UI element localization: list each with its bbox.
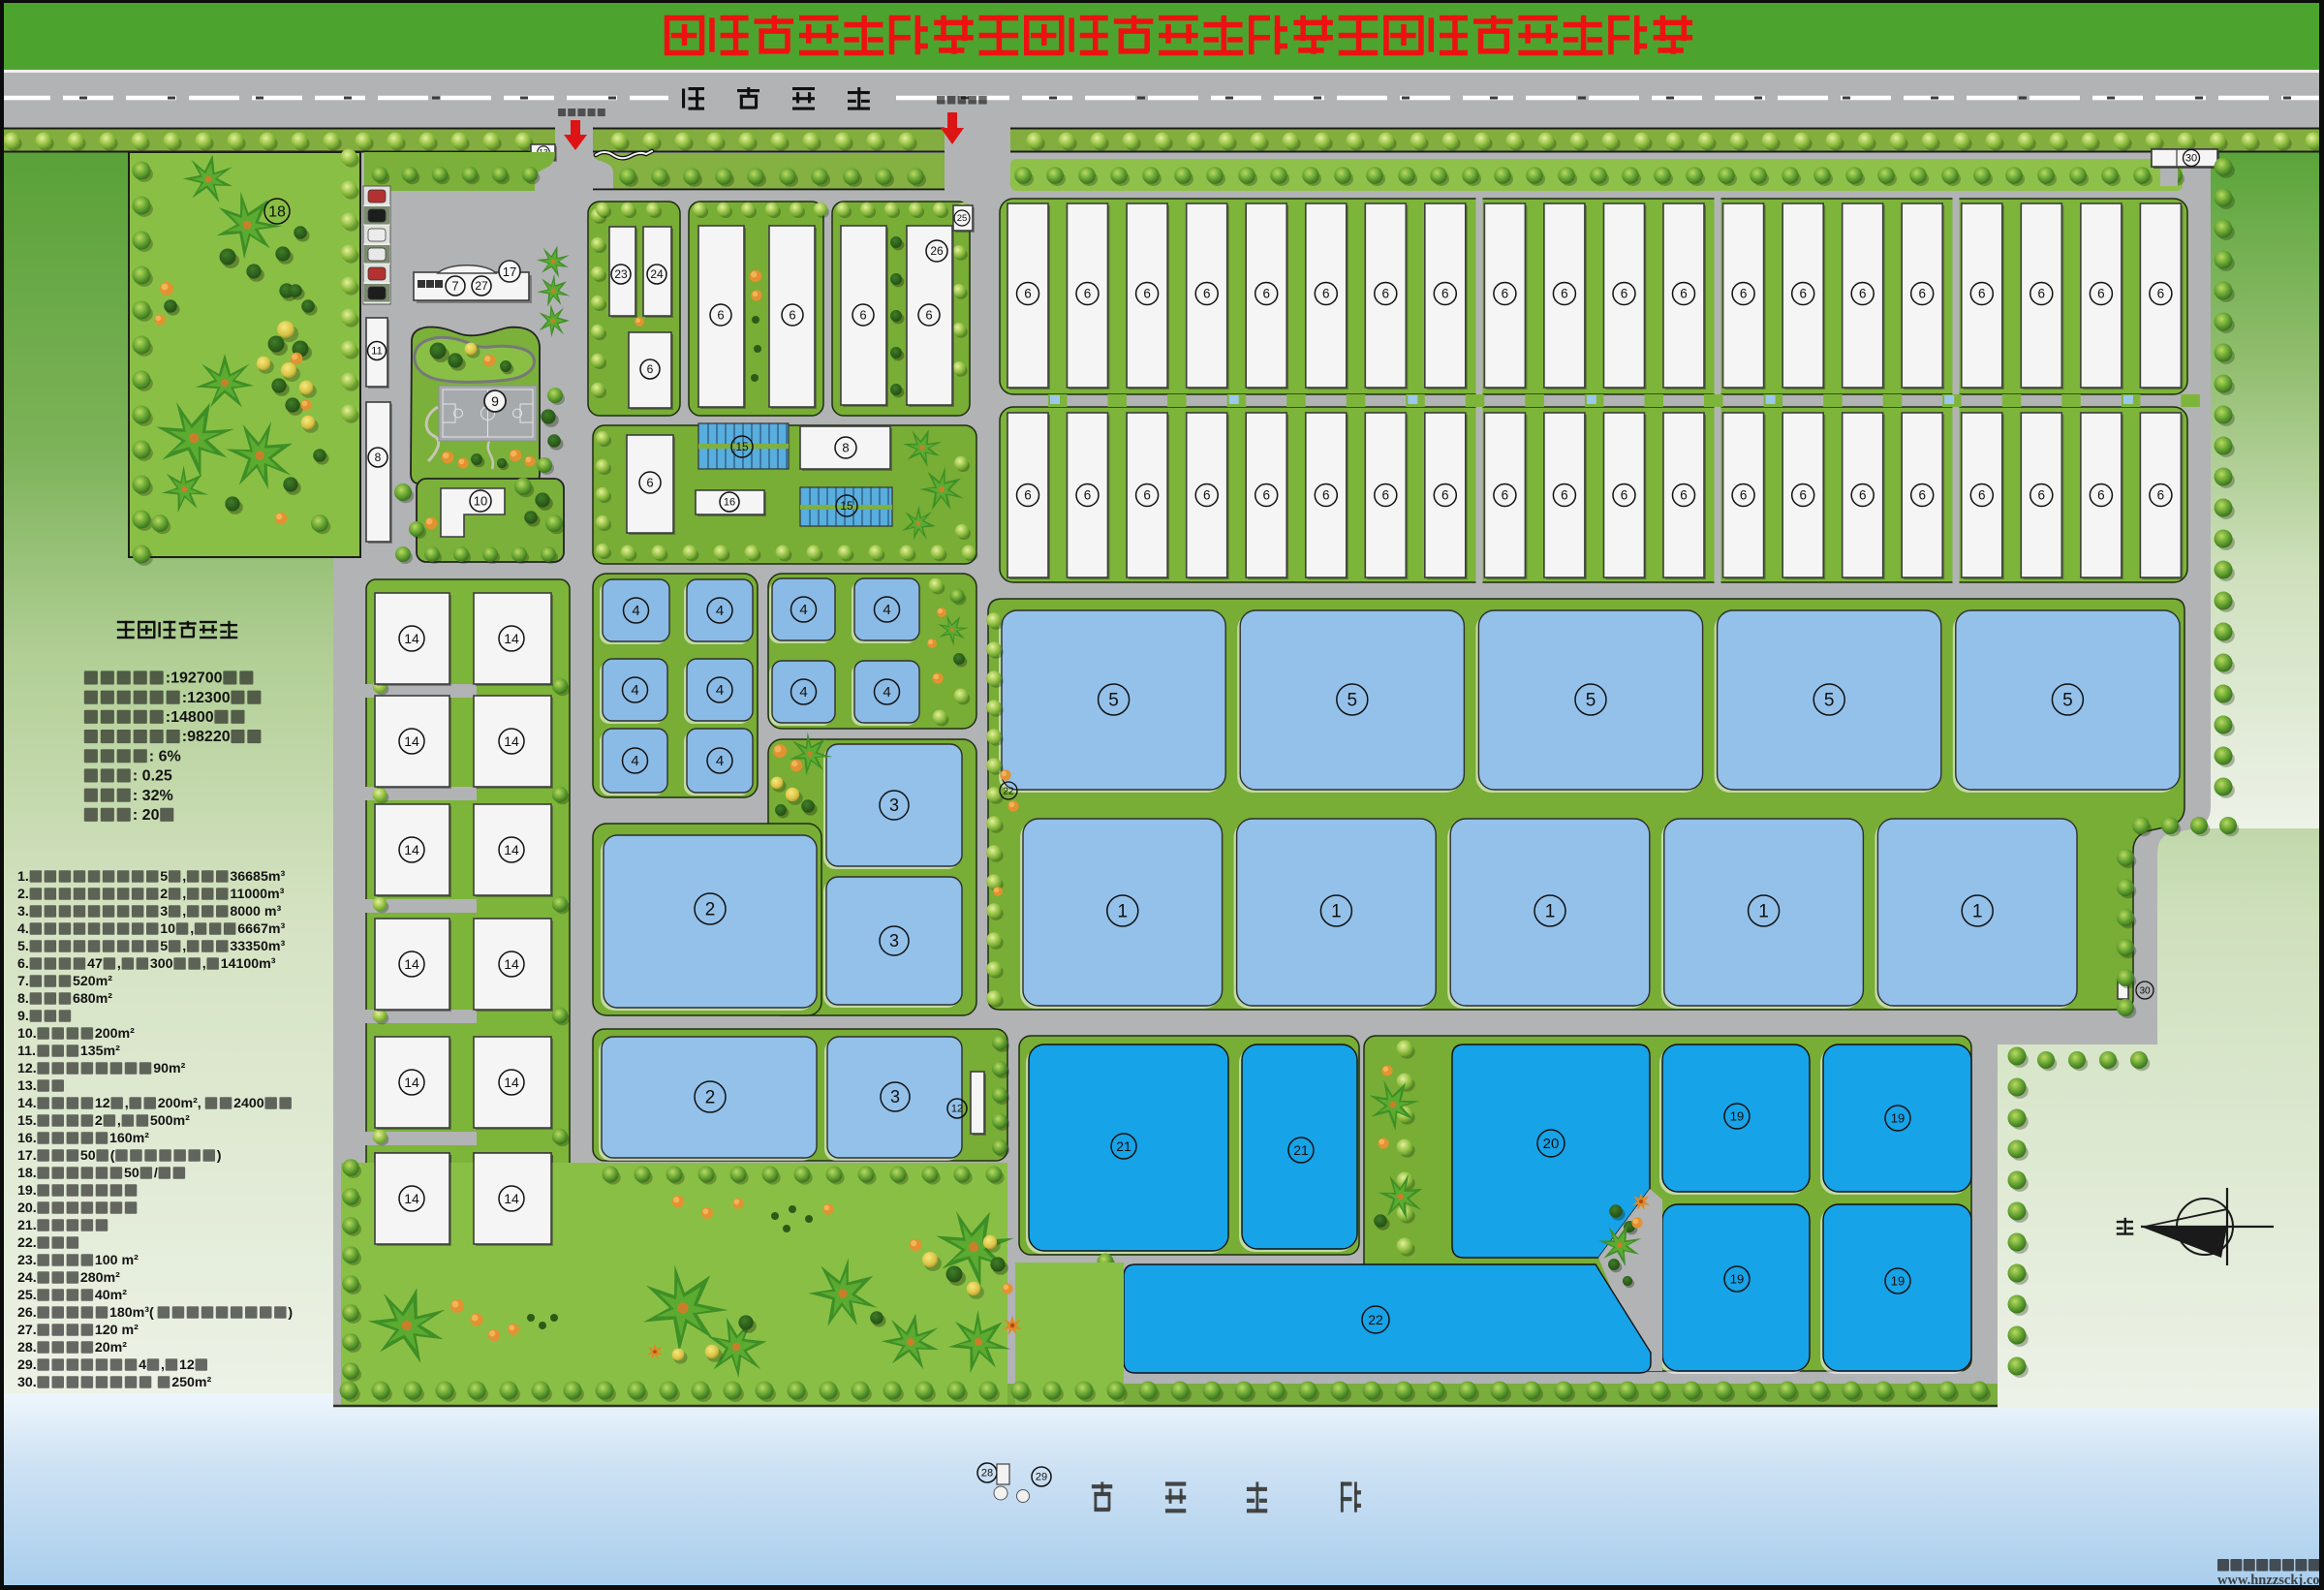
svg-text:6: 6: [1143, 488, 1151, 503]
svg-text:4: 4: [716, 753, 724, 769]
svg-text:: 32%: : 32%: [133, 788, 173, 804]
svg-text:680m²: 680m²: [73, 991, 112, 1007]
svg-text:2: 2: [160, 887, 168, 902]
svg-text:14: 14: [504, 733, 519, 749]
svg-text:22.: 22.: [17, 1235, 37, 1251]
svg-text:14: 14: [404, 1075, 419, 1090]
svg-text:: 0.25: : 0.25: [133, 768, 172, 785]
svg-text:: 6%: : 6%: [149, 748, 181, 764]
svg-text:200m²: 200m²: [95, 1026, 135, 1042]
svg-text:14: 14: [404, 631, 419, 646]
svg-text:28: 28: [981, 1468, 993, 1480]
svg-text:6: 6: [1502, 287, 1509, 301]
svg-text:6: 6: [1084, 488, 1092, 503]
svg-text:17.: 17.: [17, 1148, 37, 1164]
svg-text:500m²: 500m²: [150, 1113, 190, 1129]
svg-text:14: 14: [404, 733, 419, 749]
svg-text:6: 6: [1918, 488, 1926, 503]
svg-text:6: 6: [646, 475, 653, 489]
svg-text:,: ,: [125, 1096, 129, 1111]
svg-text:,: ,: [161, 1357, 165, 1373]
svg-text:6: 6: [1859, 287, 1867, 301]
svg-text:6: 6: [1322, 287, 1330, 301]
svg-text:6: 6: [647, 362, 654, 376]
svg-text:6: 6: [1621, 488, 1628, 503]
svg-text:2400: 2400: [233, 1096, 264, 1111]
svg-text:30: 30: [2139, 985, 2151, 996]
svg-text:: 20: : 20: [133, 807, 160, 824]
svg-text:2: 2: [705, 1088, 716, 1108]
svg-text:14: 14: [504, 1191, 519, 1206]
svg-text:2: 2: [705, 900, 716, 920]
svg-text:11000m³: 11000m³: [230, 887, 284, 902]
svg-text:3: 3: [890, 1087, 900, 1107]
svg-text:3: 3: [889, 931, 899, 951]
svg-text:19.: 19.: [17, 1183, 37, 1199]
svg-text:14: 14: [504, 631, 519, 646]
svg-text::192700: :192700: [166, 670, 223, 687]
svg-text:10: 10: [160, 921, 175, 937]
svg-text:/: /: [154, 1166, 158, 1181]
svg-text:47: 47: [87, 956, 103, 972]
svg-text:,: ,: [202, 956, 206, 972]
svg-text:4: 4: [632, 603, 639, 619]
svg-text:21.: 21.: [17, 1218, 37, 1233]
svg-text:6: 6: [925, 307, 932, 322]
svg-text:6: 6: [2097, 287, 2105, 301]
svg-text:4: 4: [716, 682, 724, 699]
svg-text:200m²,: 200m²,: [158, 1096, 201, 1111]
svg-text:10.: 10.: [17, 1026, 37, 1042]
svg-text:6: 6: [2157, 488, 2165, 503]
svg-text:5: 5: [1108, 691, 1119, 711]
svg-text:280m²: 280m²: [80, 1270, 120, 1286]
svg-text:6667m³: 6667m³: [237, 921, 285, 937]
svg-text:8000 m³: 8000 m³: [230, 904, 281, 920]
svg-text::12300: :12300: [182, 690, 231, 706]
svg-text:250m²: 250m²: [171, 1375, 211, 1390]
svg-text:21: 21: [1293, 1142, 1309, 1158]
svg-text:30.: 30.: [17, 1375, 37, 1390]
svg-text:17: 17: [503, 265, 516, 279]
svg-text:6: 6: [1740, 287, 1748, 301]
svg-text:14: 14: [504, 956, 519, 972]
svg-text:6: 6: [1680, 287, 1688, 301]
svg-text:23.: 23.: [17, 1253, 37, 1268]
svg-text:6: 6: [2038, 287, 2046, 301]
svg-text:13.: 13.: [17, 1078, 37, 1094]
svg-text:16.: 16.: [17, 1131, 37, 1146]
svg-text:6: 6: [1621, 287, 1628, 301]
svg-text:14100m³: 14100m³: [221, 956, 276, 972]
svg-text:,: ,: [182, 904, 186, 920]
svg-text:4: 4: [799, 684, 807, 701]
svg-text:4.: 4.: [17, 921, 29, 937]
svg-text:6: 6: [1740, 488, 1748, 503]
svg-text:4: 4: [716, 603, 724, 619]
svg-text:9: 9: [491, 393, 499, 409]
svg-text:26: 26: [930, 244, 944, 258]
svg-text:9.: 9.: [17, 1009, 29, 1024]
svg-text:135m²: 135m²: [80, 1044, 120, 1059]
svg-text:3.: 3.: [17, 904, 29, 920]
svg-text:19: 19: [1730, 1108, 1744, 1123]
svg-text:6: 6: [859, 307, 866, 322]
svg-text:1: 1: [1758, 902, 1769, 922]
svg-text:3: 3: [889, 795, 899, 815]
svg-text:6: 6: [1859, 488, 1867, 503]
svg-text:28.: 28.: [17, 1340, 37, 1356]
svg-text:6: 6: [1918, 287, 1926, 301]
svg-text:40m²: 40m²: [95, 1288, 127, 1303]
svg-text:14: 14: [404, 1191, 419, 1206]
svg-text:120 m²: 120 m²: [95, 1323, 139, 1338]
svg-text:6: 6: [1262, 287, 1270, 301]
svg-text:25: 25: [957, 213, 968, 224]
svg-text:300: 300: [150, 956, 173, 972]
svg-text:14: 14: [504, 1075, 519, 1090]
svg-text:11.: 11.: [17, 1044, 36, 1059]
svg-text:22: 22: [1003, 786, 1014, 796]
svg-text:14.: 14.: [17, 1096, 37, 1111]
svg-text:8: 8: [375, 451, 382, 464]
svg-text:8.: 8.: [17, 991, 29, 1007]
svg-text:1: 1: [1972, 902, 1983, 922]
svg-text:,: ,: [182, 887, 186, 902]
svg-text:6: 6: [1441, 488, 1449, 503]
svg-text::98220: :98220: [182, 729, 231, 745]
svg-text:1: 1: [1331, 902, 1342, 922]
svg-text:6: 6: [2038, 488, 2046, 503]
svg-text:7: 7: [451, 278, 458, 293]
svg-text:2: 2: [95, 1113, 103, 1129]
svg-text:26.: 26.: [17, 1305, 37, 1321]
svg-text:5: 5: [1824, 691, 1835, 711]
svg-text:33350m³: 33350m³: [230, 939, 285, 954]
svg-text:18: 18: [268, 203, 286, 220]
svg-text:6: 6: [2157, 287, 2165, 301]
svg-text:90m²: 90m²: [153, 1061, 185, 1076]
svg-text::14800: :14800: [166, 709, 214, 726]
svg-text:6: 6: [1561, 488, 1568, 503]
svg-text:15.: 15.: [17, 1113, 37, 1129]
svg-text:19: 19: [1891, 1273, 1905, 1288]
svg-text:,: ,: [117, 1113, 121, 1129]
svg-text:4: 4: [139, 1357, 146, 1373]
svg-text:30: 30: [2185, 153, 2197, 165]
svg-text:6: 6: [1978, 287, 1986, 301]
svg-text:4: 4: [883, 602, 890, 618]
svg-text:6: 6: [1978, 488, 1986, 503]
svg-text:5: 5: [160, 939, 168, 954]
svg-text:19: 19: [1891, 1110, 1905, 1125]
svg-text:21: 21: [1116, 1138, 1131, 1154]
svg-text:1.: 1.: [17, 869, 29, 885]
svg-text:6: 6: [1322, 488, 1330, 503]
svg-text:,: ,: [182, 869, 186, 885]
svg-text:1: 1: [1118, 902, 1129, 922]
svg-text:4: 4: [631, 753, 638, 769]
svg-text:6: 6: [1561, 287, 1568, 301]
svg-text:6: 6: [1143, 287, 1151, 301]
svg-text:,: ,: [190, 921, 194, 937]
svg-text:24: 24: [650, 267, 664, 281]
svg-text:14: 14: [404, 842, 419, 857]
svg-text:): ): [217, 1148, 222, 1164]
svg-text:11: 11: [371, 346, 382, 358]
svg-text:15: 15: [840, 499, 853, 513]
svg-text:7.: 7.: [17, 974, 29, 989]
svg-text:5: 5: [160, 869, 168, 885]
svg-text:8: 8: [842, 440, 849, 454]
svg-text:6: 6: [1203, 287, 1211, 301]
svg-text:4: 4: [799, 602, 807, 618]
svg-text:12: 12: [951, 1104, 963, 1115]
svg-text:18.: 18.: [17, 1166, 37, 1181]
svg-text:3: 3: [160, 904, 168, 920]
svg-text:6: 6: [1024, 488, 1032, 503]
svg-text:(: (: [110, 1148, 115, 1164]
svg-text:4: 4: [883, 684, 890, 701]
svg-text:6: 6: [789, 307, 795, 322]
svg-text:180m³(: 180m³(: [109, 1305, 154, 1321]
svg-text:20: 20: [1543, 1136, 1560, 1152]
svg-text:2.: 2.: [17, 887, 29, 902]
svg-text:6: 6: [1799, 287, 1807, 301]
svg-text:6: 6: [1203, 488, 1211, 503]
svg-text:27.: 27.: [17, 1323, 37, 1338]
svg-text:14: 14: [504, 842, 519, 857]
svg-text:100 m²: 100 m²: [95, 1253, 139, 1268]
svg-text:20m²: 20m²: [95, 1340, 127, 1356]
svg-text:160m²: 160m²: [109, 1131, 149, 1146]
svg-text:6: 6: [1382, 287, 1390, 301]
svg-text:16: 16: [724, 497, 735, 509]
svg-text:): ): [288, 1305, 293, 1321]
svg-text:20.: 20.: [17, 1200, 37, 1216]
svg-text:6: 6: [1084, 287, 1092, 301]
svg-text:27: 27: [475, 279, 488, 293]
svg-text:5.: 5.: [17, 939, 29, 954]
svg-text:,: ,: [182, 939, 186, 954]
svg-text:4: 4: [631, 682, 638, 699]
svg-text:1: 1: [1545, 902, 1556, 922]
svg-text:6.: 6.: [17, 956, 29, 972]
svg-text:36685m³: 36685m³: [230, 869, 285, 885]
svg-text:50: 50: [80, 1148, 96, 1164]
svg-text:10: 10: [474, 493, 487, 508]
svg-text:6: 6: [2097, 488, 2105, 503]
svg-text:25.: 25.: [17, 1288, 37, 1303]
svg-text:19: 19: [1730, 1271, 1744, 1286]
svg-text:5: 5: [1348, 691, 1358, 711]
svg-text:6: 6: [1024, 287, 1032, 301]
svg-text:6: 6: [1441, 287, 1449, 301]
svg-text:6: 6: [1502, 488, 1509, 503]
svg-text:5: 5: [1586, 691, 1596, 711]
svg-text:6: 6: [1799, 488, 1807, 503]
svg-text:29.: 29.: [17, 1357, 37, 1373]
svg-text:12: 12: [179, 1357, 195, 1373]
svg-text:22: 22: [1368, 1312, 1383, 1327]
svg-text:6: 6: [1382, 488, 1390, 503]
svg-text:24.: 24.: [17, 1270, 37, 1286]
svg-text:12.: 12.: [17, 1061, 37, 1076]
svg-text:50: 50: [124, 1166, 139, 1181]
svg-text:23: 23: [614, 267, 628, 281]
svg-text:6: 6: [1262, 488, 1270, 503]
svg-text:,: ,: [117, 956, 121, 972]
svg-text:5: 5: [2062, 691, 2073, 711]
svg-text:15: 15: [735, 440, 749, 453]
svg-text:14: 14: [404, 956, 419, 972]
svg-text:6: 6: [1680, 488, 1688, 503]
svg-text:12: 12: [95, 1096, 110, 1111]
svg-text:29: 29: [1036, 1472, 1047, 1483]
svg-text:6: 6: [717, 307, 724, 322]
svg-text:520m²: 520m²: [73, 974, 112, 989]
